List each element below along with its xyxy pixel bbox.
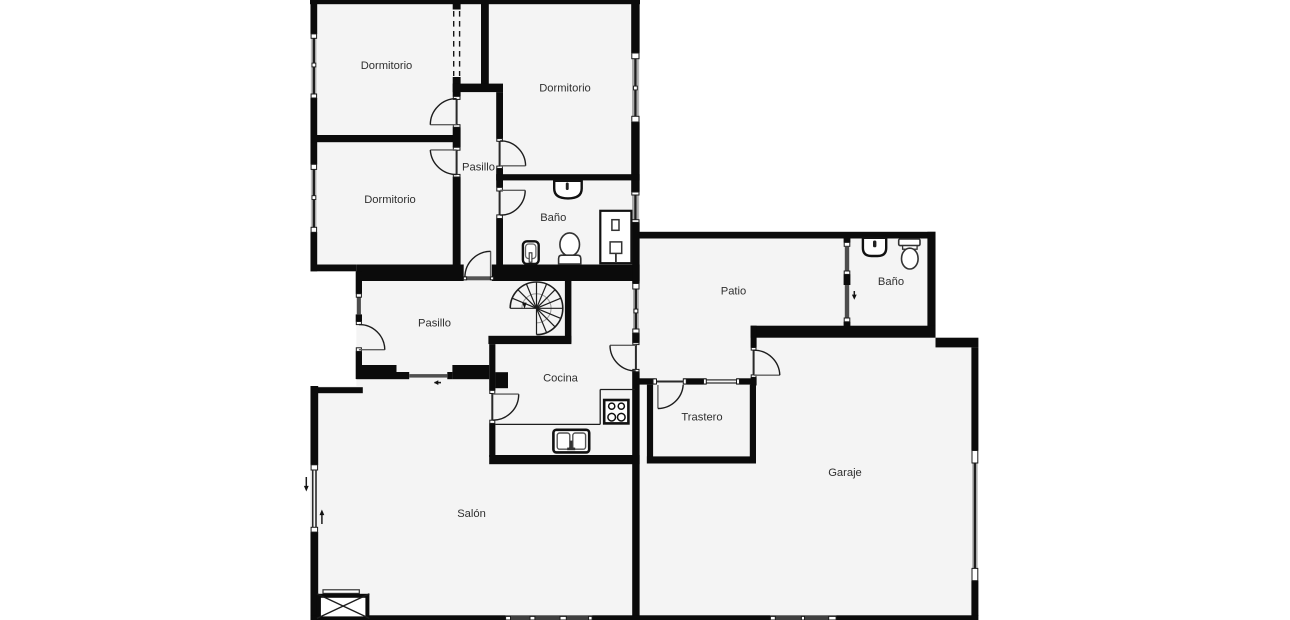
svg-text:Trastero: Trastero [681,412,722,424]
svg-text:Salón: Salón [457,508,486,520]
svg-text:Garaje: Garaje [828,467,862,479]
svg-text:Dormitorio: Dormitorio [539,83,591,95]
svg-text:Cocina: Cocina [543,373,579,385]
svg-text:Baño: Baño [540,212,566,224]
svg-text:Baño: Baño [878,276,904,288]
svg-text:Patio: Patio [721,286,747,298]
svg-text:Dormitorio: Dormitorio [364,194,416,206]
svg-text:Pasillo: Pasillo [462,162,495,174]
svg-text:Dormitorio: Dormitorio [361,60,413,72]
svg-text:Pasillo: Pasillo [418,318,451,330]
